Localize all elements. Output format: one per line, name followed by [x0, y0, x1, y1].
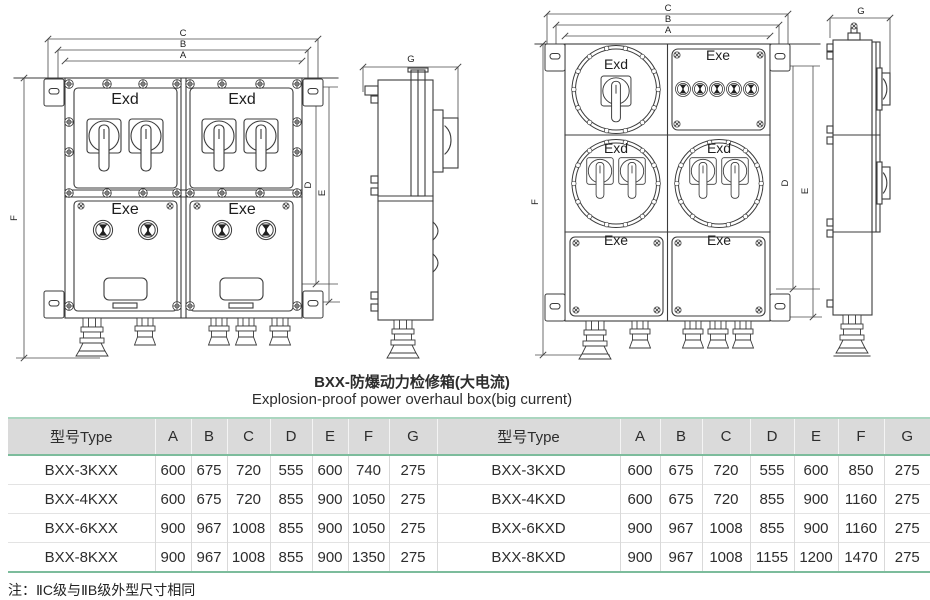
- dim-cell: 275: [389, 514, 437, 543]
- front-view-kxx-drawing: C B A F D E: [0, 0, 345, 372]
- dimensions-table: 型号Type A B C D E F G 型号Type A B C D E F …: [8, 417, 930, 573]
- dim-cell: 740: [348, 455, 389, 485]
- table-row: BXX-4KXX 600 675 720 855 900 1050 275 BX…: [8, 485, 930, 514]
- type-header: 型号Type: [8, 418, 155, 455]
- dim-label-a: A: [665, 25, 672, 36]
- dim-cell: 275: [884, 455, 930, 485]
- dim-label-e: E: [317, 190, 328, 196]
- dim-label-g: G: [857, 6, 864, 17]
- dim-cell: 720: [227, 455, 270, 485]
- exe-marking: Exe: [111, 201, 139, 218]
- dim-cell: 275: [389, 543, 437, 573]
- side-view-kxx-drawing: G: [345, 0, 470, 372]
- dim-label-a: A: [180, 50, 187, 61]
- col-header-c: C: [227, 418, 270, 455]
- enclosure-front: [14, 78, 338, 318]
- dim-cell: 855: [750, 514, 794, 543]
- dim-cell: 600: [155, 455, 191, 485]
- mounting-ears: [44, 79, 323, 318]
- table-row: BXX-6KXX 900 967 1008 855 900 1050 275 B…: [8, 514, 930, 543]
- dim-cell: 900: [794, 485, 838, 514]
- col-header-f: F: [838, 418, 884, 455]
- dim-cell: 1350: [348, 543, 389, 573]
- dim-cell: 900: [312, 485, 348, 514]
- enclosure-side: [365, 68, 458, 320]
- dim-label-b: B: [665, 14, 671, 25]
- col-header-b: B: [191, 418, 227, 455]
- cable-glands: [76, 318, 291, 356]
- dim-cell: 600: [794, 455, 838, 485]
- dim-cell: 1200: [794, 543, 838, 573]
- dim-cell: 675: [191, 485, 227, 514]
- top-screw: [851, 23, 857, 29]
- dim-label-f: F: [9, 215, 20, 221]
- dim-cell: 1160: [838, 485, 884, 514]
- dim-cell: 555: [270, 455, 312, 485]
- dim-cell: 675: [191, 455, 227, 485]
- dim-cell: 900: [312, 514, 348, 543]
- dim-cell: 1008: [227, 543, 270, 573]
- dim-label-c: C: [665, 3, 672, 14]
- footnote: 注：ⅡC级与ⅡB级外型尺寸相同: [8, 580, 930, 600]
- push-buttons: [676, 82, 759, 97]
- dim-cell: 855: [270, 514, 312, 543]
- cable-gland: [387, 320, 419, 358]
- dim-label-d: D: [780, 179, 791, 186]
- dim-label-e: E: [800, 188, 811, 194]
- dim-label-b: B: [180, 39, 186, 50]
- model-type-cell: BXX-6KXD: [437, 514, 620, 543]
- cable-gland: [836, 315, 868, 353]
- dim-cell: 1160: [838, 514, 884, 543]
- exe-marking: Exe: [706, 47, 730, 63]
- dim-cell: 675: [660, 455, 702, 485]
- dim-cell: 967: [660, 514, 702, 543]
- enclosure-side: [827, 28, 890, 356]
- dim-cell: 900: [155, 543, 191, 573]
- dim-cell: 967: [191, 543, 227, 573]
- model-type-cell: BXX-3KXD: [437, 455, 620, 485]
- table-header-row: 型号Type A B C D E F G 型号Type A B C D E F …: [8, 418, 930, 455]
- dim-cell: 850: [838, 455, 884, 485]
- dim-cell: 1008: [702, 543, 750, 573]
- model-type-cell: BXX-6KXX: [8, 514, 155, 543]
- col-header-a: A: [620, 418, 660, 455]
- exe-marking: Exe: [604, 232, 628, 248]
- dim-cell: 855: [270, 543, 312, 573]
- dim-cell: 600: [312, 455, 348, 485]
- dim-cell: 900: [155, 514, 191, 543]
- dim-label-c: C: [180, 28, 187, 39]
- col-header-d: D: [750, 418, 794, 455]
- col-header-d: D: [270, 418, 312, 455]
- side-view-kxd-drawing: G: [820, 0, 930, 372]
- dim-cell: 275: [884, 485, 930, 514]
- col-header-g: G: [389, 418, 437, 455]
- dim-cell: 720: [702, 485, 750, 514]
- table-row: BXX-3KXX 600 675 720 555 600 740 275 BXX…: [8, 455, 930, 485]
- dim-cell: 900: [312, 543, 348, 573]
- model-type-cell: BXX-8KXX: [8, 543, 155, 573]
- col-header-g: G: [884, 418, 930, 455]
- rotary-switches: [87, 119, 278, 171]
- dim-cell: 555: [750, 455, 794, 485]
- dim-cell: 675: [660, 485, 702, 514]
- dim-cell: 900: [620, 543, 660, 573]
- dim-label-g: G: [407, 54, 414, 65]
- model-type-cell: BXX-8KXD: [437, 543, 620, 573]
- exd-marking: Exd: [604, 56, 628, 72]
- dim-label-f: F: [530, 199, 541, 205]
- product-title-en: Explosion-proof power overhaul box(big c…: [0, 391, 824, 408]
- exd-marking: Exd: [111, 91, 139, 108]
- dim-cell: 1050: [348, 514, 389, 543]
- front-view-kxd-drawing: C B A F D E: [530, 0, 830, 372]
- dim-cell: 600: [620, 485, 660, 514]
- dim-cell: 720: [227, 485, 270, 514]
- col-header-c: C: [702, 418, 750, 455]
- type-header: 型号Type: [437, 418, 620, 455]
- col-header-e: E: [794, 418, 838, 455]
- dim-cell: 855: [270, 485, 312, 514]
- cable-glands: [579, 321, 754, 359]
- dim-cell: 600: [155, 485, 191, 514]
- col-header-b: B: [660, 418, 702, 455]
- dim-cell: 275: [884, 543, 930, 573]
- dim-label-d: D: [303, 181, 314, 188]
- exd-marking: Exd: [707, 140, 731, 156]
- col-header-e: E: [312, 418, 348, 455]
- dim-cell: 275: [389, 485, 437, 514]
- dim-cell: 275: [389, 455, 437, 485]
- model-type-cell: BXX-4KXX: [8, 485, 155, 514]
- dim-cell: 967: [191, 514, 227, 543]
- model-type-cell: BXX-4KXD: [437, 485, 620, 514]
- col-header-f: F: [348, 418, 389, 455]
- exe-marking: Exe: [707, 232, 731, 248]
- dim-cell: 1008: [702, 514, 750, 543]
- exd-marking: Exd: [604, 140, 628, 156]
- dim-cell: 720: [702, 455, 750, 485]
- dim-cell: 900: [620, 514, 660, 543]
- exd-marking: Exd: [228, 91, 256, 108]
- push-buttons: [93, 220, 275, 239]
- dim-cell: 1155: [750, 543, 794, 573]
- dim-cell: 1050: [348, 485, 389, 514]
- exe-marking: Exe: [228, 201, 256, 218]
- dim-cell: 1470: [838, 543, 884, 573]
- dim-cell: 600: [620, 455, 660, 485]
- dim-cell: 900: [794, 514, 838, 543]
- figure-title: BXX-防爆动力检修箱(大电流) Explosion-proof power o…: [0, 374, 824, 408]
- dim-cell: 1008: [227, 514, 270, 543]
- model-type-cell: BXX-3KXX: [8, 455, 155, 485]
- table-row: BXX-8KXX 900 967 1008 855 900 1350 275 B…: [8, 543, 930, 573]
- frame-bolts: [65, 80, 302, 311]
- dim-cell: 275: [884, 514, 930, 543]
- dim-cell: 967: [660, 543, 702, 573]
- product-title-zh: BXX-防爆动力检修箱(大电流): [0, 374, 824, 391]
- technical-drawings: C B A F D E: [0, 0, 930, 372]
- col-header-a: A: [155, 418, 191, 455]
- dim-cell: 855: [750, 485, 794, 514]
